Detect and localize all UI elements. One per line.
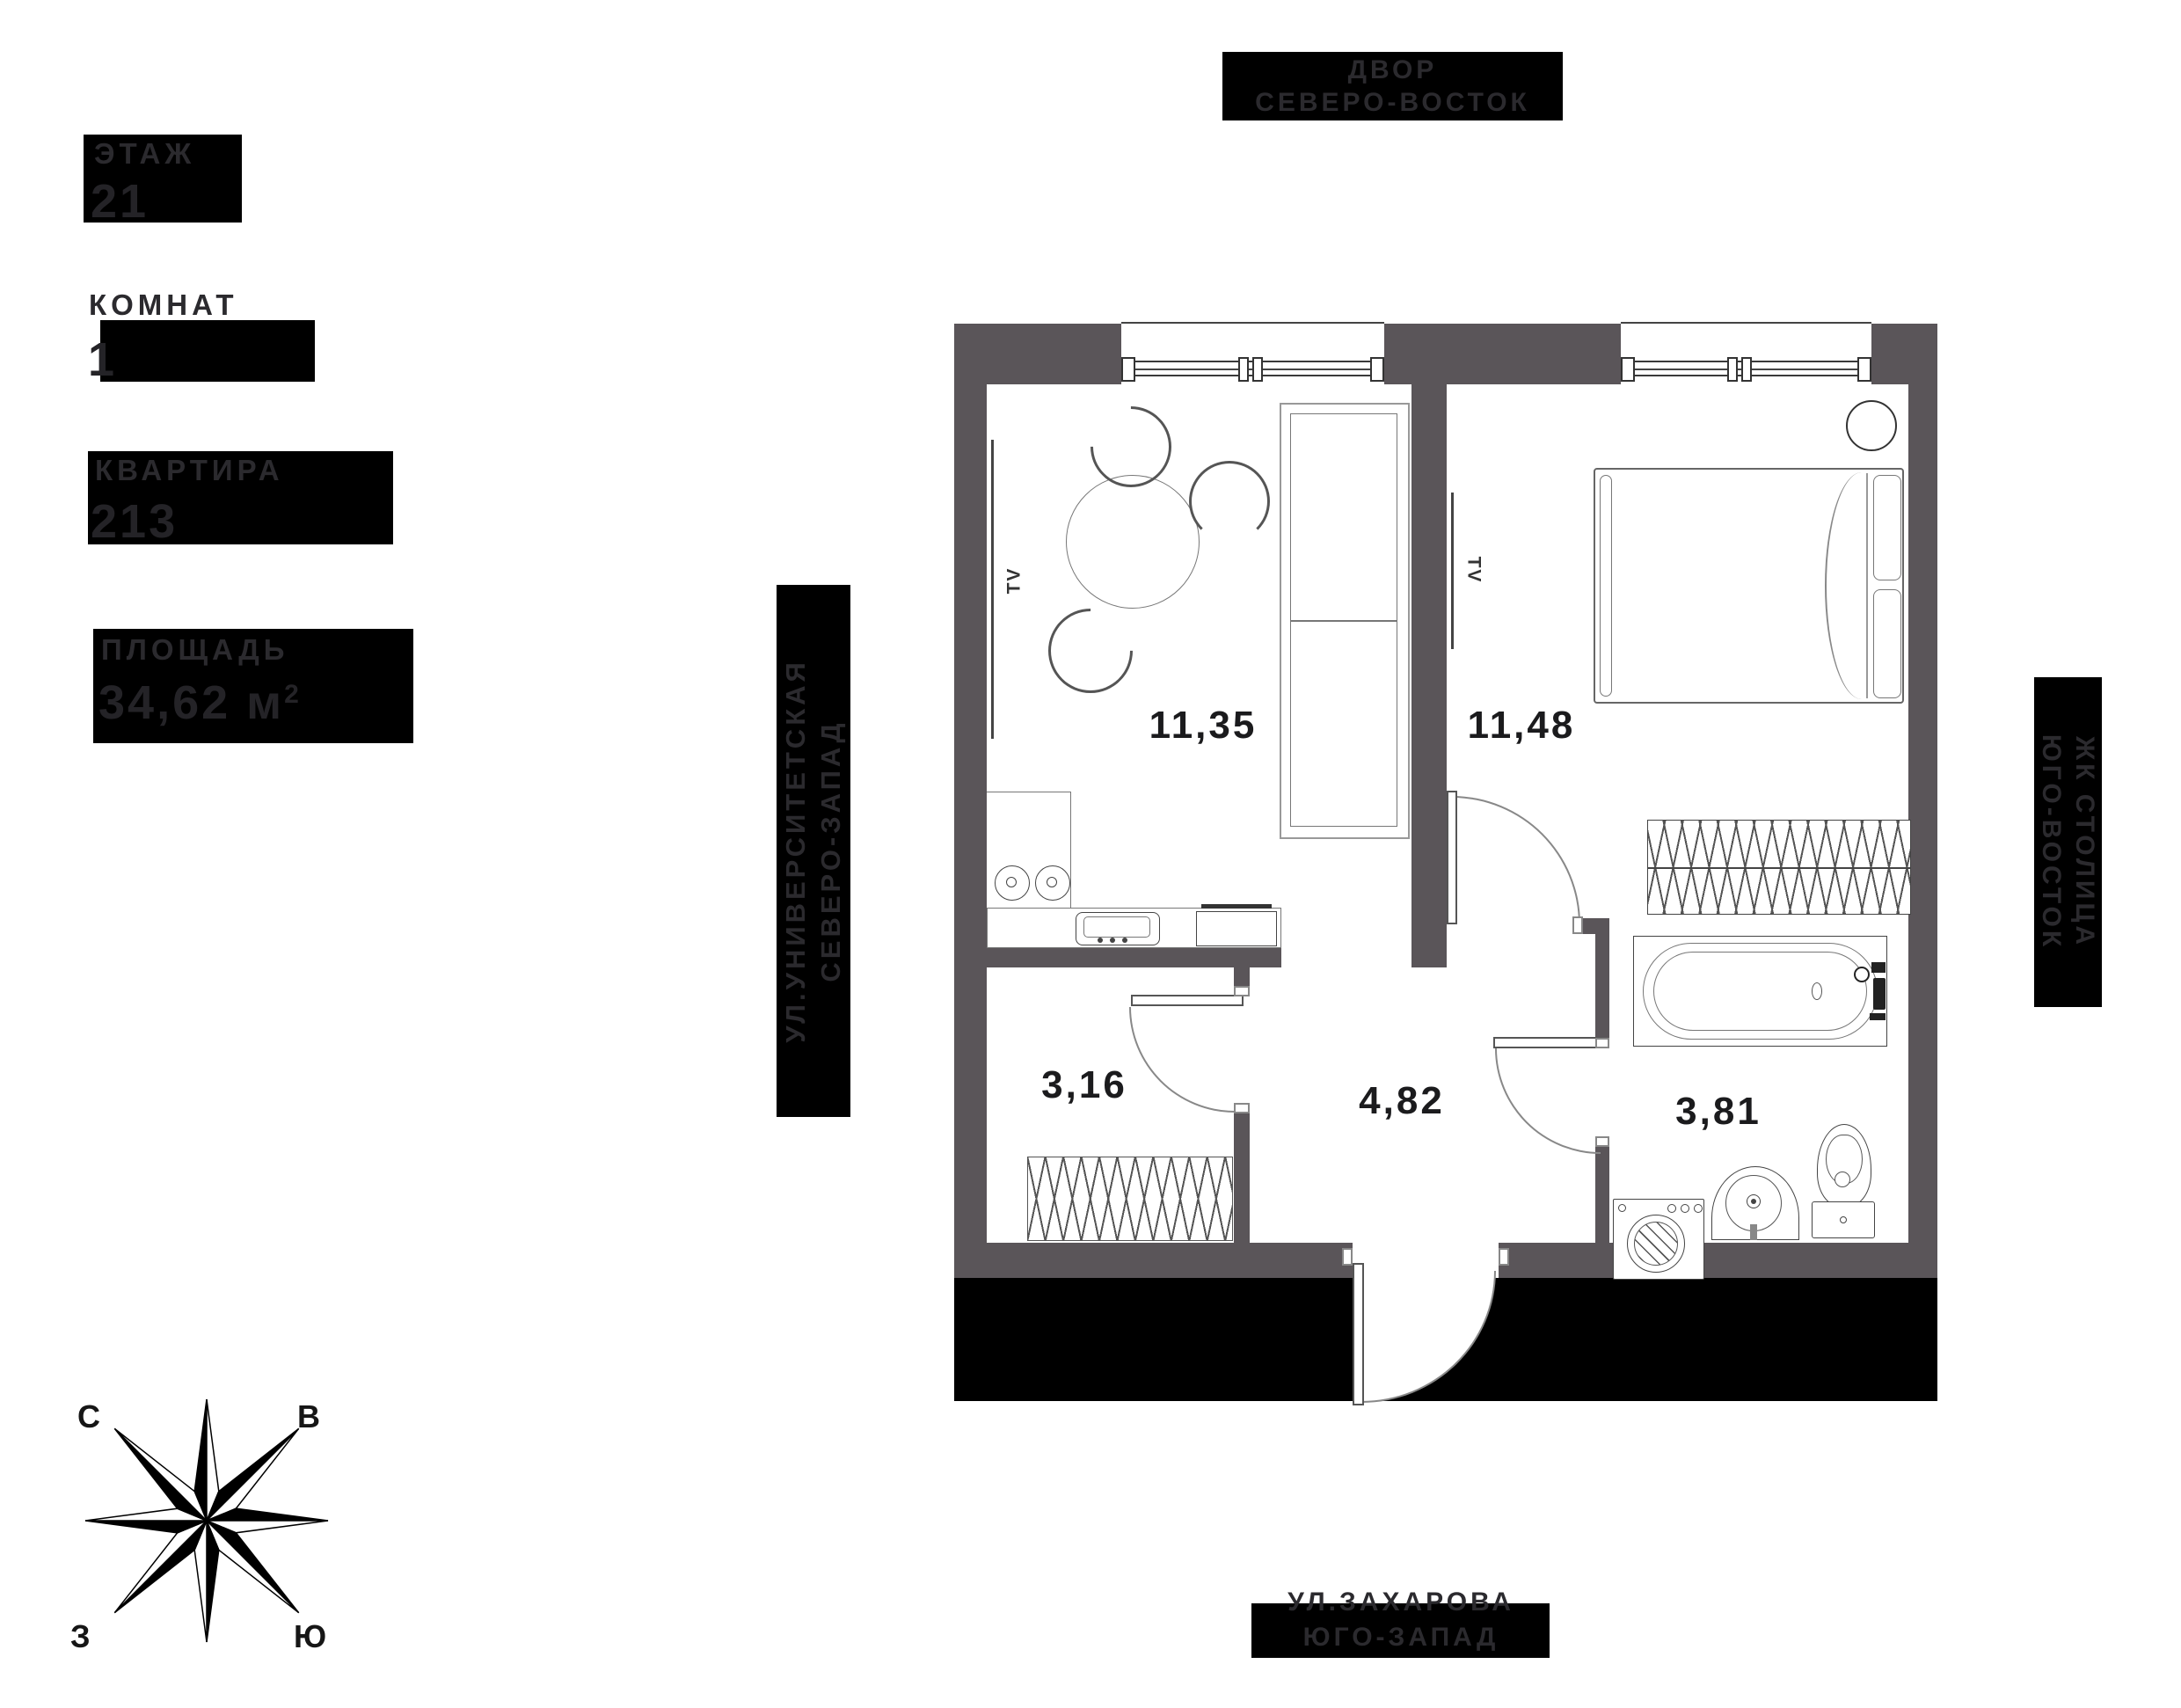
entrance-door-jamb-left	[1342, 1248, 1353, 1266]
closet-wardrobe	[1027, 1157, 1233, 1241]
bed-pillow-1	[1873, 475, 1901, 580]
window-living-mullion	[1238, 357, 1249, 382]
bedroom-door-jamb	[1572, 916, 1583, 934]
rooms-value: 1	[88, 332, 117, 387]
wall-bottom-right	[1499, 1243, 1937, 1278]
room-area-bedroom: 11,48	[1468, 704, 1576, 748]
wall-divider-living-bedroom	[1411, 384, 1447, 967]
bathtub-basin	[1653, 952, 1867, 1031]
kitchen-sink-dot-3	[1122, 938, 1127, 943]
closet-door-swing	[1129, 1007, 1235, 1113]
bedroom-wardrobe	[1647, 820, 1911, 915]
window-living-outer-line	[1121, 322, 1384, 324]
bathtub-faucet-2	[1873, 978, 1886, 1010]
washing-machine-dot-1	[1667, 1204, 1676, 1213]
area-value: 34,62 м2	[98, 675, 302, 730]
apartment-value: 213	[91, 494, 178, 549]
window-living-cap-right	[1370, 357, 1384, 382]
kitchen-appliance-handle	[1201, 904, 1272, 909]
toilet-flush	[1835, 1172, 1850, 1187]
orientation-right-line2: ЮГО-ВОСТОК	[2035, 734, 2068, 950]
bathroom-door-swing	[1495, 1048, 1601, 1154]
washing-machine-dot-2	[1681, 1204, 1689, 1213]
wall-bottom-left	[954, 1243, 1353, 1278]
orientation-top-line2: СЕВЕРО-ВОСТОК	[1255, 86, 1530, 119]
rooms-block	[100, 320, 315, 382]
orientation-right-line1: ЖК СТОЛИЦА	[2068, 736, 2102, 948]
bedside-stool	[1846, 400, 1897, 451]
compass-east-label: В	[297, 1398, 321, 1435]
orientation-bottom-line1: УЛ.ЗАХАРОВА	[1287, 1585, 1514, 1620]
bathtub-faucet-1	[1871, 962, 1886, 973]
wall-left-exterior	[954, 324, 987, 1278]
entrance-door-leaf	[1353, 1263, 1364, 1405]
compass-north-label: С	[77, 1398, 101, 1435]
bathroom-door-jamb-bottom	[1595, 1136, 1609, 1147]
orientation-left-line2: СЕВЕРО-ЗАПАД	[813, 719, 849, 982]
wall-right-exterior	[1908, 324, 1937, 1278]
toilet-tank-button	[1840, 1216, 1847, 1223]
tv-bedroom-icon	[1451, 493, 1454, 649]
floor-label: ЭТАЖ	[94, 137, 195, 171]
room-area-hallway: 4,82	[1359, 1079, 1445, 1123]
floorplan-page: ЭТАЖ 21 КОМНАТ 1 КВАРТИРА 213 ПЛОЩАДЬ 34…	[0, 0, 2181, 1708]
tv-living-icon	[991, 440, 994, 739]
bathroom-sink-tap	[1750, 1224, 1757, 1240]
wall-top-middle	[1384, 324, 1621, 384]
orientation-left-line1: УЛ.УНИВЕРСИТЕТСКАЯ	[778, 659, 813, 1043]
window-bedroom-cap-left	[1621, 357, 1635, 382]
compass-south-label: Ю	[294, 1618, 327, 1655]
bedroom-door-leaf	[1447, 791, 1457, 924]
kitchen-sink	[1076, 912, 1160, 945]
wall-living-bottom	[954, 948, 1281, 967]
washing-machine-knob	[1618, 1204, 1626, 1212]
window-living-mullion-2	[1252, 357, 1263, 382]
bathtub-faucet-knob	[1854, 967, 1870, 982]
dining-chair-2	[1189, 461, 1270, 542]
kitchen-sink-dot-2	[1110, 938, 1115, 943]
tv-living-label: TV	[1003, 567, 1025, 595]
bathtub-drain	[1812, 982, 1822, 1000]
window-bedroom-cap-right	[1857, 357, 1871, 382]
bed-headboard-line	[1866, 473, 1868, 698]
room-area-closet: 3,16	[1041, 1063, 1127, 1107]
stove-burner-2	[1035, 865, 1070, 901]
closet-door-leaf	[1131, 995, 1244, 1006]
bedroom-door-swing	[1452, 796, 1580, 924]
washing-machine-dot-3	[1694, 1204, 1703, 1213]
apartment-label: КВАРТИРА	[95, 454, 284, 487]
dining-table	[1066, 475, 1200, 609]
entrance-door-jamb-right	[1499, 1248, 1509, 1266]
orientation-right: ЖК СТОЛИЦА ЮГО-ВОСТОК	[2034, 677, 2102, 1007]
washing-machine-drum-inner	[1634, 1222, 1678, 1266]
orientation-bottom-line2: ЮГО-ЗАПАД	[1303, 1620, 1499, 1655]
stove-burner-1	[995, 865, 1030, 901]
sofa	[1280, 403, 1410, 839]
bathroom-door-leaf	[1493, 1037, 1602, 1048]
room-area-kitchen-living: 11,35	[1149, 704, 1258, 748]
window-bedroom-mullion-2	[1741, 357, 1752, 382]
window-bedroom-outer-line	[1621, 322, 1871, 324]
compass-west-label: З	[70, 1618, 91, 1655]
rooms-label: КОМНАТ	[89, 288, 237, 322]
bed-footboard	[1600, 475, 1612, 697]
orientation-top: ДВОР СЕВЕРО-ВОСТОК	[1222, 52, 1563, 120]
bathroom-sink-dot	[1751, 1199, 1756, 1204]
floor-value: 21	[91, 174, 149, 229]
wall-closet-right-lower	[1234, 1113, 1250, 1243]
orientation-left: УЛ.УНИВЕРСИТЕТСКАЯ СЕВЕРО-ЗАПАД	[777, 585, 850, 1117]
area-superscript: 2	[284, 680, 302, 709]
bathtub-faucet-3	[1870, 1013, 1886, 1020]
tv-bedroom-label: TV	[1463, 557, 1484, 584]
closet-door-jamb-bottom	[1234, 1103, 1250, 1113]
orientation-bottom: УЛ.ЗАХАРОВА ЮГО-ЗАПАД	[1214, 1581, 1588, 1659]
kitchen-appliance	[1196, 911, 1277, 946]
closet-door-jamb-top	[1234, 986, 1250, 996]
kitchen-sink-dot-1	[1098, 938, 1103, 943]
wall-bathroom-left-upper	[1595, 934, 1609, 1038]
bathroom-door-jamb-top	[1595, 1038, 1609, 1048]
bed-pillow-2	[1873, 589, 1901, 698]
wall-bathroom-left-lower	[1595, 1147, 1609, 1243]
orientation-top-line1: ДВОР	[1348, 54, 1438, 86]
area-label: ПЛОЩАДЬ	[101, 633, 288, 667]
dining-chair-3	[1031, 591, 1150, 711]
wall-bedroom-bottom	[1581, 918, 1609, 934]
window-bedroom-mullion	[1727, 357, 1738, 382]
window-living-cap-left	[1121, 357, 1135, 382]
room-area-bathroom: 3,81	[1675, 1090, 1762, 1134]
